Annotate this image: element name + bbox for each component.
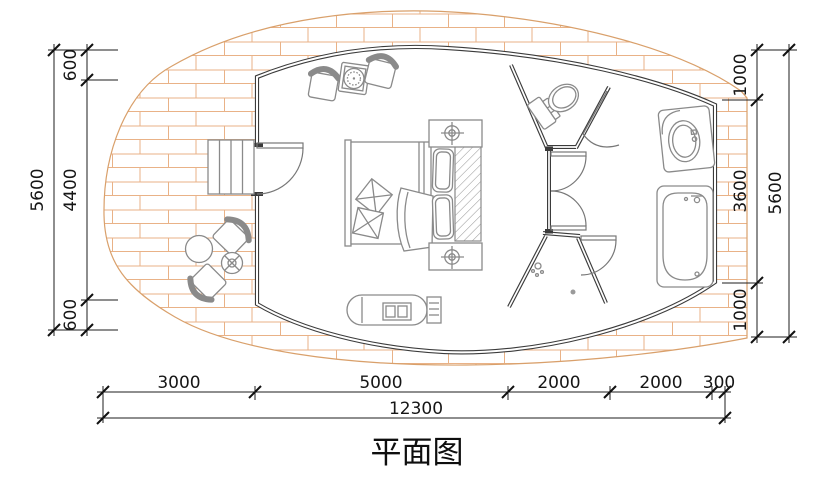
lounge-chair [307, 67, 340, 101]
dimension-right: 1000 3600 1000 5600 [722, 44, 797, 343]
entry-steps [208, 140, 254, 194]
tv-bench [347, 295, 441, 325]
throw-blanket [397, 188, 433, 251]
drawing-title: 平面图 [371, 435, 464, 471]
vanity-sink [658, 105, 715, 172]
floor-drain-icon [571, 290, 576, 295]
dim-left-total: 5600 [28, 168, 48, 211]
dim-right-seg-bot: 1000 [731, 288, 751, 331]
dim-right-seg-mid: 3600 [731, 169, 751, 212]
pillow [432, 195, 454, 240]
dim-bottom-seg-2: 5000 [359, 373, 402, 393]
headboard-rug [455, 146, 481, 241]
dim-right-total: 5600 [766, 171, 786, 214]
bathtub [657, 186, 713, 287]
dim-bottom-seg-5: 300 [703, 373, 735, 393]
double-bed [345, 140, 481, 251]
potted-plant-icon [222, 253, 243, 274]
dimension-bottom: 3000 5000 2000 2000 300 12300 [97, 373, 735, 424]
dim-bottom-seg-3: 2000 [537, 373, 580, 393]
dim-right-seg-top: 1000 [731, 53, 751, 96]
floor-plan-page: 600 4400 600 5600 1000 3600 1000 5600 [0, 0, 837, 496]
nightstand [429, 120, 482, 147]
dim-left-seg-mid: 4400 [61, 168, 81, 211]
nightstand [429, 243, 482, 270]
dim-bottom-seg-1: 3000 [157, 373, 200, 393]
cushion [353, 208, 384, 239]
floor-plan-drawing: 600 4400 600 5600 1000 3600 1000 5600 [0, 0, 837, 496]
dim-left-seg-bot: 600 [61, 299, 81, 331]
pillow [432, 149, 453, 193]
dim-left-seg-top: 600 [61, 49, 81, 81]
dim-bottom-total: 12300 [389, 399, 443, 419]
patio-table [186, 236, 213, 263]
dim-bottom-seg-4: 2000 [639, 373, 682, 393]
